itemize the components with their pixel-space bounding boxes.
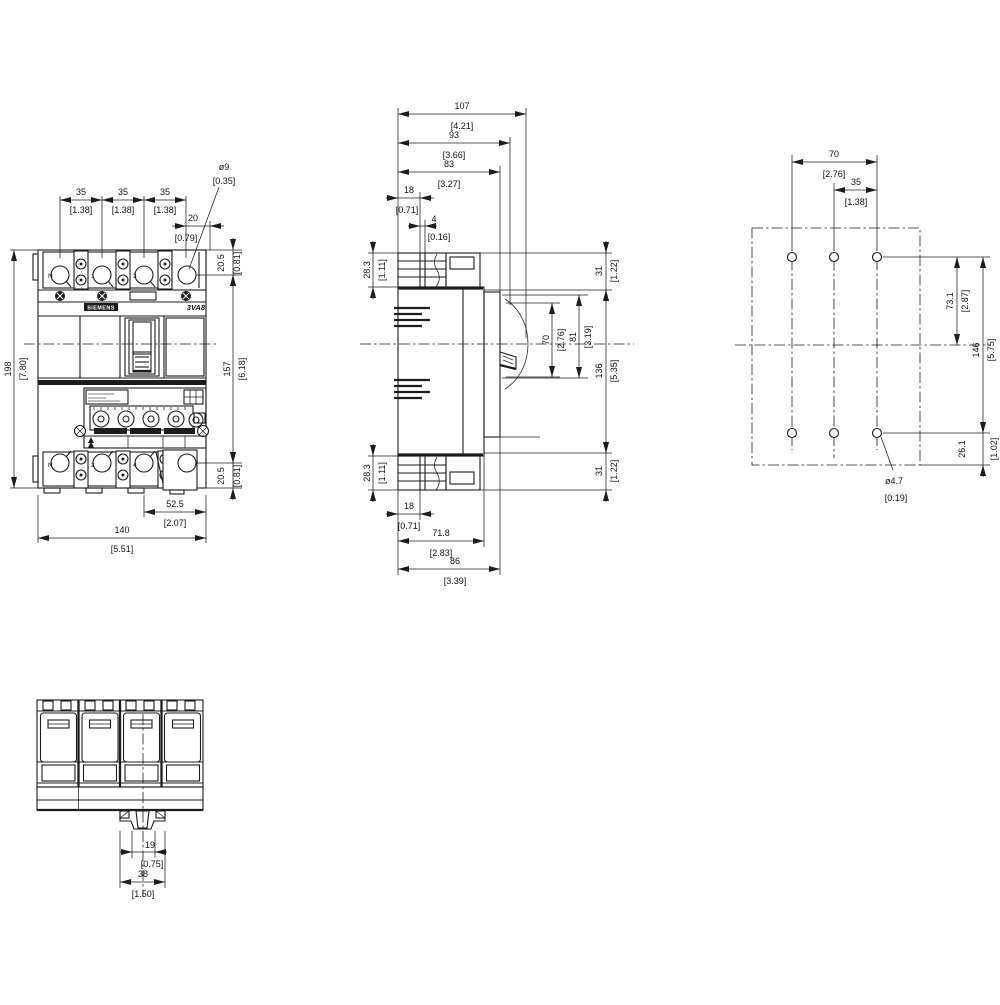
dim-front-hole-bottom-mm: 20.5 <box>216 467 226 485</box>
front-bottom-terminals: N 2 4 <box>43 450 197 494</box>
dim-side-term-top-mm: 28.3 <box>362 261 372 279</box>
dim-side-top31-mm: 31 <box>594 266 604 276</box>
dim-side-gap4-in: [0.16] <box>428 232 451 242</box>
dim-side-term-bottom-in: [1.11] <box>377 462 387 484</box>
dim-side-bottom18-in: [0.71] <box>398 521 421 531</box>
dim-side-depth93-mm: 93 <box>449 130 459 140</box>
dim-front-pitch-a-mm: 35 <box>76 187 86 197</box>
dim-side-handle81-mm: 81 <box>568 332 578 342</box>
dim-front-height-in: [7.80] <box>18 358 28 381</box>
drill-hole <box>830 429 839 438</box>
clip-catch <box>136 811 149 828</box>
rear-dimensions: 70 [2.76] 35 [1.38] 73.1 [2.87] 146 [5.7… <box>792 149 999 503</box>
setting-dial <box>93 411 109 427</box>
dim-bottom-clip38-mm: 38 <box>138 869 148 879</box>
dim-bottom-clip19-mm: 19 <box>145 840 155 850</box>
dim-side-top31-in: [1.22] <box>609 260 619 283</box>
dim-side-term-top-in: [1.11] <box>377 259 387 281</box>
front-face <box>80 316 204 378</box>
mounting-hole-top <box>178 266 196 284</box>
rear-drilling-view: 70 [2.76] 35 [1.38] 73.1 [2.87] 146 [5.7… <box>735 149 999 503</box>
dim-side-gap4-mm: 4 <box>431 214 436 224</box>
drill-hole <box>873 253 882 262</box>
drawing-canvas: N 1 3 SIEMENS 3VA8 <box>0 0 1000 1000</box>
terminal-label-2: 2 <box>91 462 95 469</box>
dim-side-handle70-in: [2.76] <box>556 329 566 352</box>
setting-dial <box>168 411 184 427</box>
setting-dial <box>189 413 203 427</box>
dim-rear-holes35-mm: 35 <box>851 177 861 187</box>
dim-front-pitch-b-mm: 35 <box>118 187 128 197</box>
dim-rear-lower26-mm: 26.1 <box>957 440 967 458</box>
dim-front-edge20-in: [0.79] <box>175 233 198 243</box>
dim-front-width-in: [5.51] <box>111 544 134 554</box>
dim-front-width-partial-in: [2.07] <box>164 518 187 528</box>
dim-side-depth86-in: [3.39] <box>444 576 467 586</box>
base-plate <box>37 787 203 810</box>
dim-rear-upper73-in: [2.87] <box>960 290 970 313</box>
terminal-label-n-top: N <box>48 273 53 280</box>
side-outline <box>360 253 634 490</box>
dim-front-hole-bottom-in: [0.81] <box>232 465 242 488</box>
dim-front-width-mm: 140 <box>114 525 129 535</box>
dim-front-hole-dia-in: [0.35] <box>213 176 236 186</box>
side-dimensions: 107 [4.21] 93 [3.66] 83 [3.27] 18 [0.71]… <box>362 101 619 586</box>
terminal-label-1: 1 <box>91 273 95 280</box>
side-view: 107 [4.21] 93 [3.66] 83 [3.27] 18 [0.71]… <box>360 101 634 586</box>
dim-side-depth71-mm: 71.8 <box>432 528 450 538</box>
dim-front-hole-span-in: [6.18] <box>237 358 247 381</box>
dim-front-height-mm: 198 <box>3 361 13 376</box>
dim-side-depth107-mm: 107 <box>454 101 469 111</box>
side-escutcheon <box>484 292 500 437</box>
setting-dial <box>143 411 159 427</box>
trip-unit <box>75 388 209 448</box>
dim-front-hole-top-in: [0.81] <box>232 252 242 275</box>
dim-side-top18-in: [0.71] <box>396 205 419 215</box>
side-body <box>398 287 484 456</box>
dim-front-edge20-mm: 20 <box>188 213 198 223</box>
dim-front-pitch-c-in: [1.38] <box>154 205 177 215</box>
dim-rear-span146-mm: 146 <box>971 342 981 357</box>
dim-bottom-clip19-in: [0.75] <box>141 859 164 869</box>
terminal-label-3: 3 <box>133 273 137 280</box>
bottom-dimensions: 19 [0.75] 38 [1.50] <box>120 831 167 899</box>
dim-side-bottom18-mm: 18 <box>404 501 414 511</box>
dim-rear-lower26-in: [1.02] <box>989 438 999 461</box>
dim-rear-hole-dia-mm: ø4.7 <box>885 476 903 486</box>
dim-front-pitch-b-in: [1.38] <box>112 205 135 215</box>
dim-rear-holes70-mm: 70 <box>829 149 839 159</box>
dim-bottom-clip38-in: [1.50] <box>132 889 155 899</box>
dim-side-mid136-in: [5.35] <box>609 360 619 383</box>
dim-front-hole-top-mm: 20.5 <box>216 254 226 272</box>
dim-front-pitch-c-mm: 35 <box>160 187 170 197</box>
dim-side-mid136-mm: 136 <box>594 363 604 378</box>
front-top-terminals: N 1 3 <box>43 250 206 290</box>
dim-rear-hole-dia-in: [0.19] <box>885 493 908 503</box>
mounting-hole-bottom <box>178 454 196 472</box>
dim-front-hole-dia-mm: ø9 <box>219 162 230 172</box>
dim-side-depth83-in: [3.27] <box>438 179 461 189</box>
setting-dial <box>118 411 134 427</box>
dim-side-top18-mm: 18 <box>404 185 414 195</box>
dim-side-depth86-mm: 86 <box>450 556 460 566</box>
dim-side-depth83-mm: 83 <box>444 159 454 169</box>
dim-front-pitch-a-in: [1.38] <box>70 205 93 215</box>
break-line <box>435 254 440 287</box>
terminal-label-n-bottom: N <box>48 462 53 469</box>
dim-side-handle70-mm: 70 <box>541 335 551 345</box>
dim-side-handle81-in: [3.19] <box>583 326 593 349</box>
drill-hole <box>788 253 797 262</box>
dim-rear-upper73-mm: 73.1 <box>945 292 955 310</box>
dim-side-term-bottom-mm: 28.3 <box>362 464 372 482</box>
brand-label: SIEMENS <box>87 306 115 312</box>
drill-hole <box>873 429 882 438</box>
dim-rear-span146-in: [5.75] <box>986 339 996 362</box>
technical-drawing: N 1 3 SIEMENS 3VA8 <box>0 0 1000 1000</box>
dim-front-hole-span-mm: 157 <box>222 361 232 376</box>
dim-side-bottom31-mm: 31 <box>594 466 604 476</box>
model-label: 3VA8 <box>187 303 206 312</box>
dim-side-bottom31-in: [1.22] <box>609 460 619 483</box>
bottom-view: 19 [0.75] 38 [1.50] <box>37 700 203 899</box>
toggle-handle <box>133 322 151 354</box>
dim-rear-holes70-in: [2.76] <box>823 169 846 179</box>
terminal-label-4: 4 <box>133 462 137 469</box>
front-view: N 1 3 SIEMENS 3VA8 <box>3 162 247 554</box>
dim-side-depth71-in: [2.83] <box>430 548 453 558</box>
dim-front-width-partial-mm: 52.5 <box>166 499 184 509</box>
drill-hole <box>830 253 839 262</box>
dim-rear-holes35-in: [1.38] <box>845 197 868 207</box>
drill-hole <box>788 429 797 438</box>
